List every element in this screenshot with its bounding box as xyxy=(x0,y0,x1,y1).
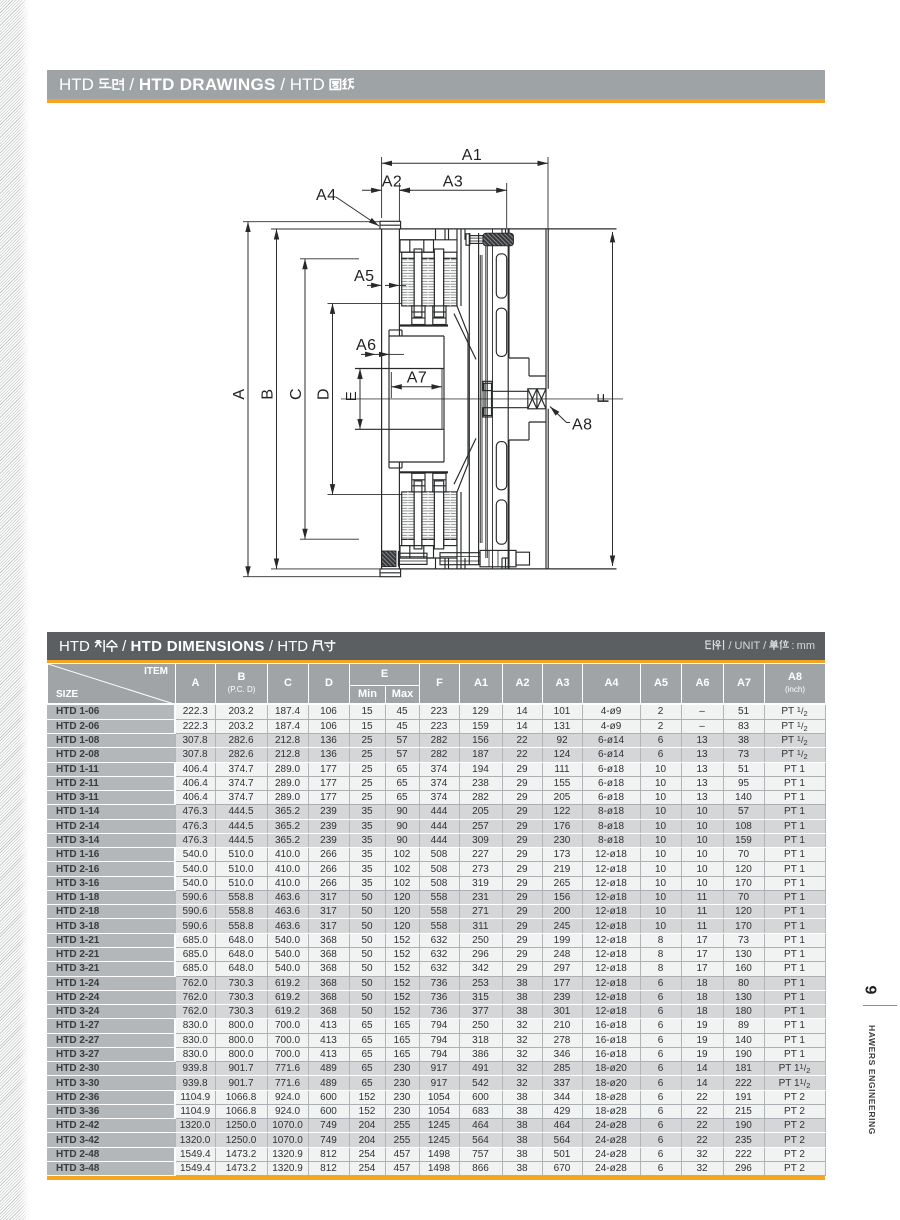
svg-text:A4: A4 xyxy=(316,187,337,204)
svg-text:E: E xyxy=(343,391,360,402)
svg-text:A6: A6 xyxy=(356,337,377,354)
svg-text:A1: A1 xyxy=(462,147,483,164)
svg-text:A5: A5 xyxy=(354,268,375,285)
svg-text:F: F xyxy=(596,393,613,403)
svg-text:A8: A8 xyxy=(572,417,593,434)
svg-text:A2: A2 xyxy=(382,174,403,191)
svg-text:A7: A7 xyxy=(407,370,428,387)
svg-text:A: A xyxy=(231,388,248,399)
svg-text:A3: A3 xyxy=(443,174,464,191)
svg-text:9: 9 xyxy=(862,986,879,995)
svg-text:B: B xyxy=(260,388,277,399)
svg-text:D: D xyxy=(316,388,333,400)
svg-text:C: C xyxy=(288,388,305,400)
